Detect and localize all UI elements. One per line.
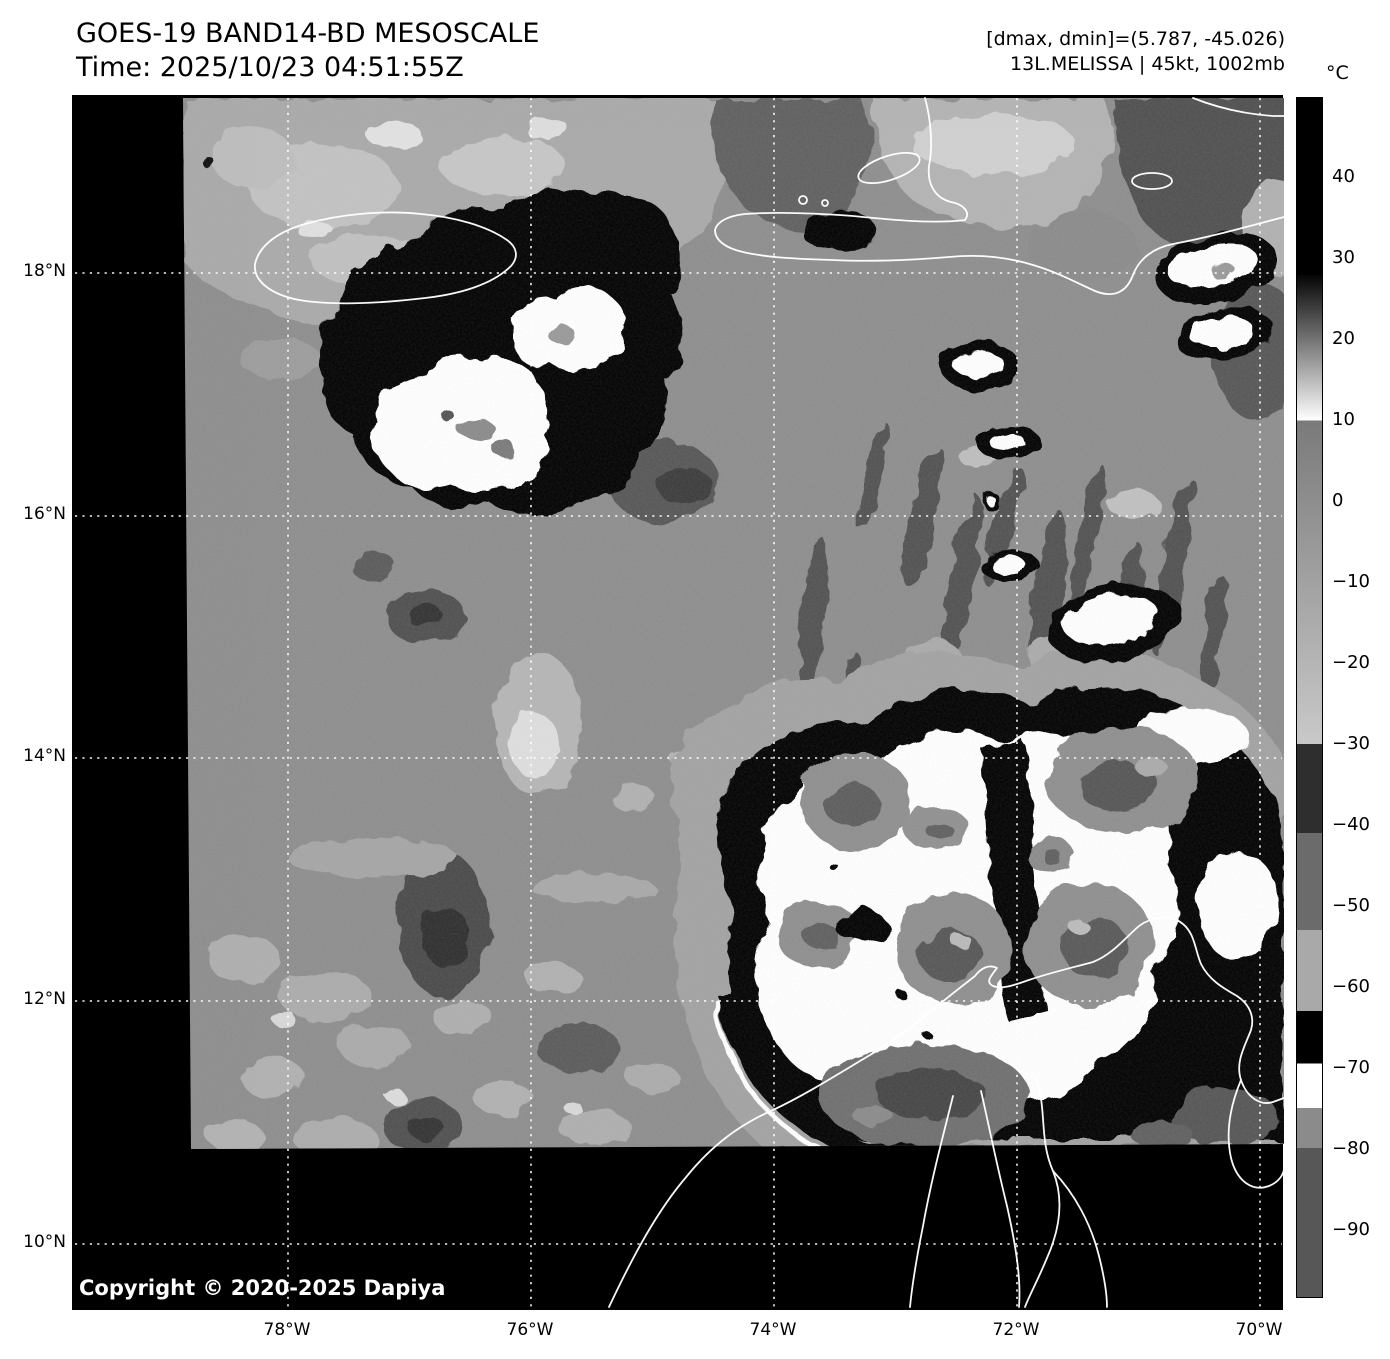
longitude-label: 70°W <box>1214 1320 1304 1341</box>
colorbar-tick-label: 20 <box>1332 328 1390 349</box>
satellite-imagery <box>73 96 1284 1311</box>
longitude-label: 78°W <box>242 1320 332 1341</box>
goes-satellite-product-page: GOES-19 BAND14-BD MESOSCALE Time: 2025/1… <box>0 0 1390 1359</box>
latitude-label: 10°N <box>0 1232 66 1253</box>
colorbar-tick-label: −20 <box>1332 652 1390 673</box>
longitude-label: 76°W <box>485 1320 575 1341</box>
copyright-watermark: Copyright © 2020-2025 Dapiya <box>79 1276 445 1300</box>
dmax-dmin-readout: [dmax, dmin]=(5.787, -45.026) <box>986 28 1285 50</box>
storm-intensity-readout: 13L.MELISSA | 45kt, 1002mb <box>1010 53 1285 75</box>
border-line <box>1053 1171 1107 1307</box>
latitude-label: 18°N <box>0 261 66 282</box>
colorbar-tick-label: 10 <box>1332 409 1390 430</box>
temperature-colorbar <box>1296 97 1323 1298</box>
colorbar-tick-label: −10 <box>1332 571 1390 592</box>
product-title: GOES-19 BAND14-BD MESOSCALE <box>76 18 539 50</box>
latitude-label: 12°N <box>0 989 66 1010</box>
satellite-map: Copyright © 2020-2025 Dapiya <box>72 95 1283 1310</box>
product-timestamp: Time: 2025/10/23 04:51:55Z <box>76 52 464 84</box>
colorbar-tick-label: −70 <box>1332 1057 1390 1078</box>
image-grain <box>183 98 1284 1149</box>
colorbar-tick-label: −30 <box>1332 733 1390 754</box>
latitude-label: 16°N <box>0 504 66 525</box>
colorbar-tick-label: 0 <box>1332 490 1390 511</box>
latitude-label: 14°N <box>0 746 66 767</box>
colorbar-unit-label: °C <box>1326 62 1349 84</box>
colorbar-tick-label: −80 <box>1332 1138 1390 1159</box>
colorbar-tick-label: −50 <box>1332 895 1390 916</box>
colorbar-tick-label: 40 <box>1332 166 1390 187</box>
colorbar-tick-label: −60 <box>1332 976 1390 997</box>
colorbar-tick-label: −40 <box>1332 814 1390 835</box>
longitude-label: 72°W <box>971 1320 1061 1341</box>
colorbar-tick-label: −90 <box>1332 1219 1390 1240</box>
colorbar-tick-label: 30 <box>1332 247 1390 268</box>
longitude-label: 74°W <box>728 1320 818 1341</box>
